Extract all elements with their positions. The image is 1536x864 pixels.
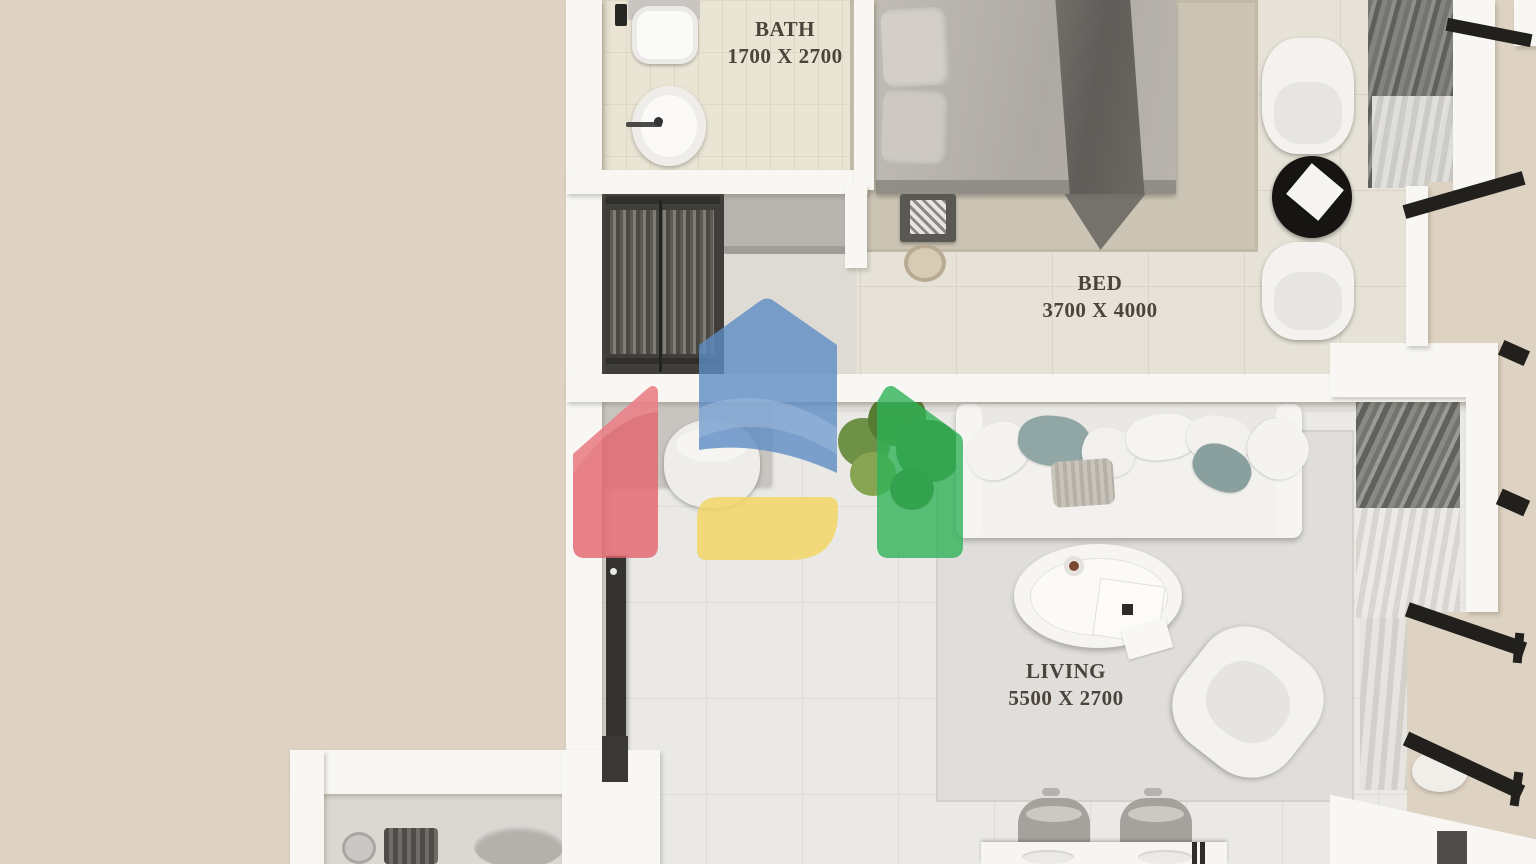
dining-chair-top [1128, 806, 1184, 822]
annex-cylinder [342, 832, 376, 864]
bath-room-label: BATH 1700 X 2700 [690, 16, 880, 70]
wall-bath-bottom [566, 170, 868, 194]
annex-dome-fixture [474, 826, 564, 864]
wall-pillar [845, 184, 867, 268]
glass-wall-living [1466, 397, 1498, 612]
desk-chair-back [676, 428, 748, 462]
cutlery [1192, 842, 1197, 864]
stool [904, 244, 946, 282]
door-opening [602, 736, 628, 782]
cup-coffee [1069, 561, 1079, 571]
annex-wall-left [290, 750, 324, 864]
nightstand-cloth [910, 200, 946, 234]
living-curtain [1356, 398, 1460, 508]
flush-plate [615, 4, 627, 26]
dining-table [981, 842, 1227, 864]
plate [1022, 850, 1074, 864]
tv-console [606, 556, 626, 762]
room-dimensions: 3700 X 4000 [1010, 297, 1190, 324]
annex-wall-top [290, 750, 604, 794]
chair-knob [1042, 788, 1060, 796]
room-name: LIVING [976, 658, 1156, 685]
wardrobe-shelf [606, 358, 720, 364]
window-frame-mark [1496, 489, 1530, 517]
dining-chair-top [1026, 806, 1082, 822]
plate [1138, 850, 1192, 864]
bed-pillow [881, 89, 952, 165]
knit-throw [1050, 458, 1115, 508]
bed-pillow [880, 6, 952, 87]
wardrobe-pole [659, 200, 662, 372]
floor-plan-render: BATH 1700 X 2700 BED 3700 X 4000 LIVING … [0, 0, 1536, 864]
faucet-knob [654, 117, 663, 126]
living-sheer-curtain [1356, 508, 1460, 618]
bedroom-sheer-curtain [1372, 96, 1454, 188]
book-mark [1122, 604, 1133, 615]
plant-foliage [890, 468, 934, 510]
chair-knob [1144, 788, 1162, 796]
potted-plant [838, 390, 964, 516]
room-dimensions: 5500 X 2700 [976, 685, 1156, 712]
cutlery [1200, 842, 1205, 864]
room-name: BATH [690, 16, 880, 43]
wardrobe-shelf [606, 196, 720, 204]
armchair-seat [1274, 82, 1342, 144]
living-room-label: LIVING 5500 X 2700 [976, 658, 1156, 712]
room-dimensions: 1700 X 2700 [690, 43, 880, 70]
wall-mid-right [1330, 343, 1498, 397]
balcony-door-glass [1437, 831, 1467, 864]
toilet [632, 6, 698, 64]
annex-clutter [384, 828, 438, 864]
wardrobe-clothes [610, 210, 714, 354]
console-knob [610, 568, 617, 575]
room-name: BED [1010, 270, 1190, 297]
dresser [724, 192, 846, 254]
bed-room-label: BED 3700 X 4000 [1010, 270, 1190, 324]
armchair-seat [1274, 272, 1342, 330]
